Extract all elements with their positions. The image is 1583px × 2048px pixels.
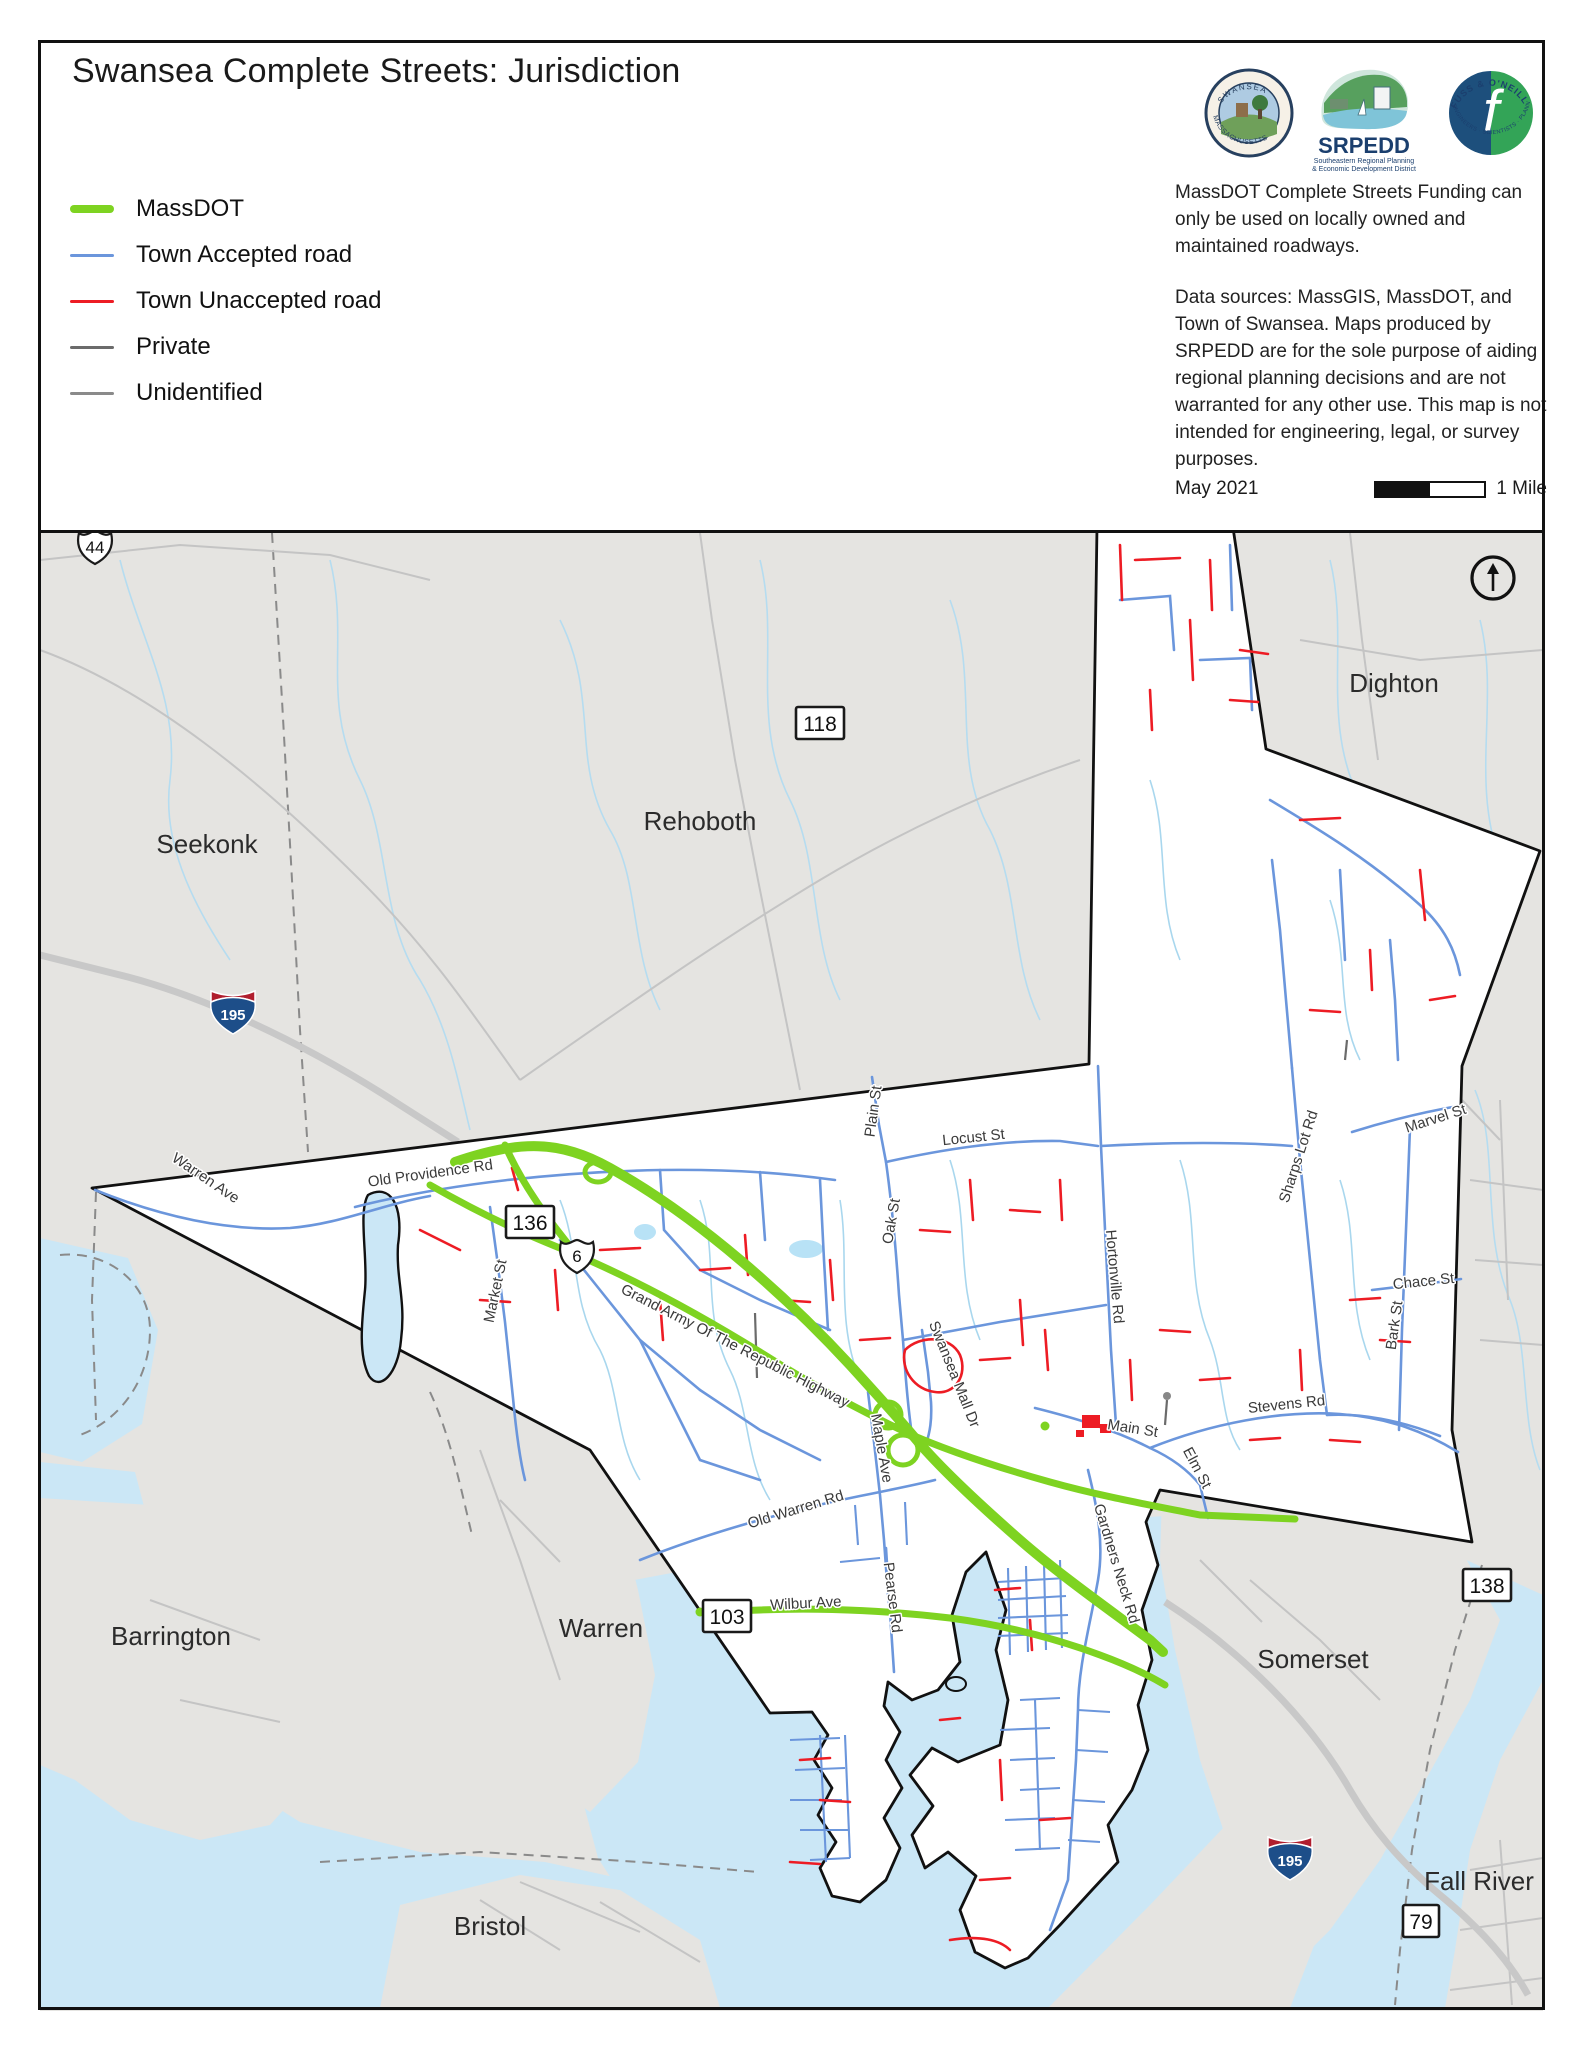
- town-label: Seekonk: [156, 829, 258, 859]
- logo-row: SWANSEA MASSACHUSETTS SRPEDD Southeaster…: [1198, 58, 1548, 168]
- legend-swatch: [70, 254, 114, 257]
- legend-label: Town Unaccepted road: [136, 287, 381, 315]
- map-date: May 2021: [1175, 478, 1374, 500]
- svg-text:& Economic Development Distric: & Economic Development District: [1312, 166, 1416, 173]
- legend: MassDOTTown Accepted roadTown Unaccepted…: [70, 186, 381, 416]
- legend-swatch: [70, 392, 114, 395]
- svg-text:Southeastern Regional Planning: Southeastern Regional Planning: [1314, 158, 1415, 165]
- legend-swatch: [70, 300, 114, 303]
- svg-text:6: 6: [572, 1247, 581, 1266]
- town-label: Rehoboth: [644, 806, 757, 836]
- funding-note: MassDOT Complete Streets Funding can onl…: [1175, 180, 1547, 261]
- town-label: Warren: [559, 1613, 643, 1643]
- svg-text:44: 44: [86, 538, 105, 557]
- state-route-shield: 103: [703, 1600, 751, 1632]
- svg-text:138: 138: [1469, 1575, 1504, 1598]
- road-end-dot: [1163, 1392, 1171, 1400]
- state-route-shield: 136: [506, 1206, 554, 1238]
- svg-text:SRPEDD: SRPEDD: [1318, 133, 1410, 158]
- legend-swatch: [70, 346, 114, 349]
- svg-text:79: 79: [1409, 1911, 1432, 1934]
- legend-label: MassDOT: [136, 195, 244, 223]
- svg-text:103: 103: [709, 1606, 744, 1629]
- map-canvas: SeekonkRehobothDightonBarringtonWarrenBr…: [40, 530, 1543, 2011]
- town-label: Fall River: [1424, 1866, 1534, 1896]
- legend-item: Unidentified: [70, 370, 381, 416]
- town-label: Somerset: [1257, 1644, 1369, 1674]
- swansea-seal-logo: SWANSEA MASSACHUSETTS: [1206, 70, 1292, 156]
- legend-item: Town Unaccepted road: [70, 278, 381, 324]
- svg-text:136: 136: [512, 1212, 547, 1235]
- legend-item: Town Accepted road: [70, 232, 381, 278]
- svg-text:195: 195: [220, 1007, 245, 1024]
- legend-item: MassDOT: [70, 186, 381, 232]
- map-svg: SeekonkRehobothDightonBarringtonWarrenBr…: [40, 533, 1543, 2008]
- scale-bar: [1374, 481, 1486, 498]
- logos-svg: SWANSEA MASSACHUSETTS SRPEDD Southeaster…: [1198, 58, 1548, 173]
- legend-item: Private: [70, 324, 381, 370]
- town-label: Bristol: [454, 1911, 526, 1941]
- state-route-shield: 138: [1463, 1569, 1511, 1601]
- state-route-shield: 79: [1403, 1905, 1439, 1937]
- date-scale-row: May 2021 1 Mile: [1175, 478, 1547, 500]
- sources-note: Data sources: MassGIS, MassDOT, and Town…: [1175, 285, 1547, 474]
- svg-text:195: 195: [1277, 1853, 1302, 1870]
- state-route-shield: 118: [796, 707, 844, 739]
- legend-swatch: [70, 205, 114, 213]
- town-label: Dighton: [1349, 668, 1439, 698]
- legend-label: Unidentified: [136, 379, 263, 407]
- legend-label: Private: [136, 333, 211, 361]
- scale-label: 1 Mile: [1496, 478, 1547, 500]
- srpedd-logo: SRPEDD Southeastern Regional Planning & …: [1312, 70, 1416, 173]
- notes-block: MassDOT Complete Streets Funding can onl…: [1175, 180, 1547, 498]
- legend-label: Town Accepted road: [136, 241, 352, 269]
- town-label: Barrington: [111, 1621, 231, 1651]
- page-title: Swansea Complete Streets: Jurisdiction: [72, 52, 681, 91]
- svg-text:118: 118: [803, 713, 836, 736]
